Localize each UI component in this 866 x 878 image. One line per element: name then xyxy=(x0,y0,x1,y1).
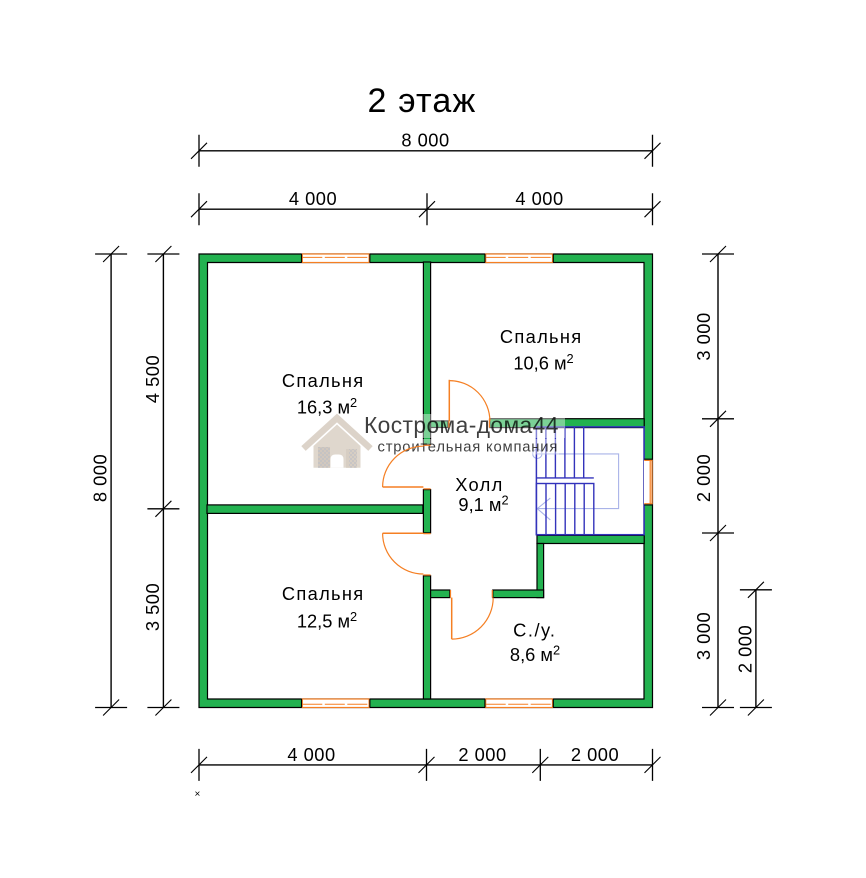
svg-text:4 000: 4 000 xyxy=(287,744,335,765)
svg-text:Кострома-дома44: Кострома-дома44 xyxy=(364,412,559,438)
svg-text:2 этаж: 2 этаж xyxy=(367,82,476,120)
svg-text:Холл: Холл xyxy=(455,474,503,495)
svg-text:3 500: 3 500 xyxy=(142,583,163,631)
svg-text:3 000: 3 000 xyxy=(693,612,714,660)
svg-text:8 000: 8 000 xyxy=(90,454,111,502)
svg-text:3 000: 3 000 xyxy=(693,312,714,360)
svg-text:4 500: 4 500 xyxy=(142,355,163,403)
svg-text:Спальня: Спальня xyxy=(500,326,583,347)
svg-text:8 000: 8 000 xyxy=(401,130,449,151)
svg-text:12,5 м2: 12,5 м2 xyxy=(297,609,357,632)
svg-text:строительная компания: строительная компания xyxy=(378,440,559,456)
svg-text:2 000: 2 000 xyxy=(734,625,755,673)
svg-text:2 000: 2 000 xyxy=(458,744,506,765)
svg-text:4 000: 4 000 xyxy=(289,188,337,209)
svg-text:9,1 м2: 9,1 м2 xyxy=(458,492,508,515)
svg-text:Спальня: Спальня xyxy=(282,370,365,391)
svg-text:2 000: 2 000 xyxy=(571,744,619,765)
svg-text:16,3 м2: 16,3 м2 xyxy=(297,395,357,418)
svg-text:Спальня: Спальня xyxy=(282,583,365,604)
svg-text:2 000: 2 000 xyxy=(693,454,714,502)
svg-text:С./у.: С./у. xyxy=(513,620,556,641)
svg-text:8,6 м2: 8,6 м2 xyxy=(510,643,560,666)
svg-text:4 000: 4 000 xyxy=(515,188,563,209)
svg-text:10,6 м2: 10,6 м2 xyxy=(513,351,573,374)
svg-text:×: × xyxy=(195,789,201,800)
